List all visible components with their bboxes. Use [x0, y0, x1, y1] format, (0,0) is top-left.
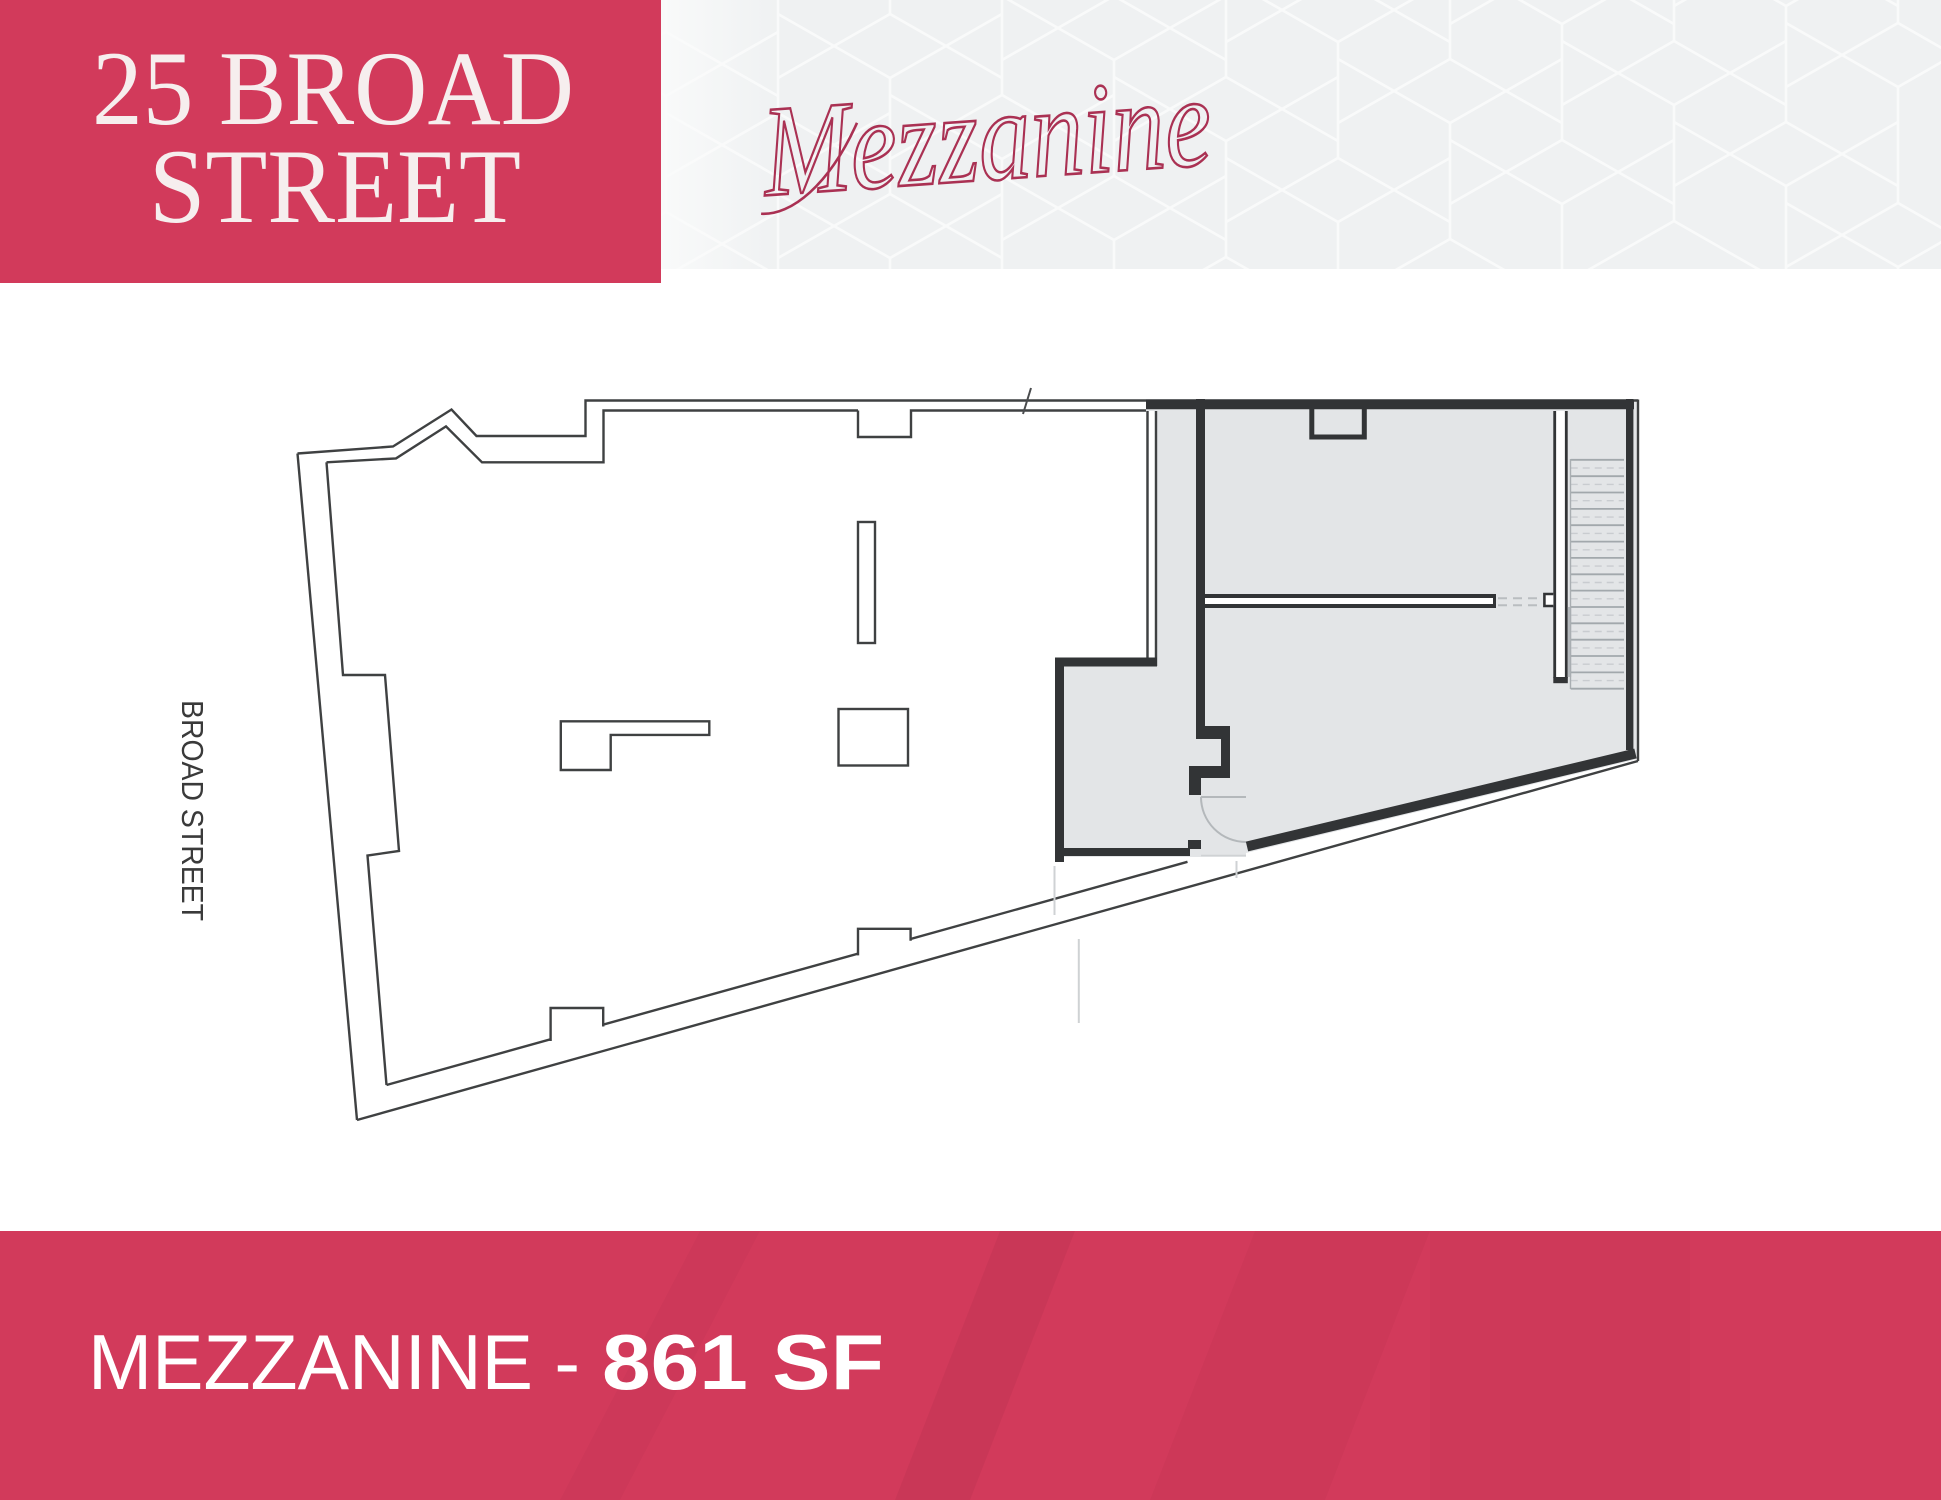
svg-text:BROAD STREET: BROAD STREET — [175, 700, 209, 921]
svg-text:STREET: STREET — [149, 128, 521, 245]
svg-text:MEZZANINE -: MEZZANINE - — [88, 1320, 580, 1406]
svg-text:861 SF: 861 SF — [602, 1320, 884, 1406]
